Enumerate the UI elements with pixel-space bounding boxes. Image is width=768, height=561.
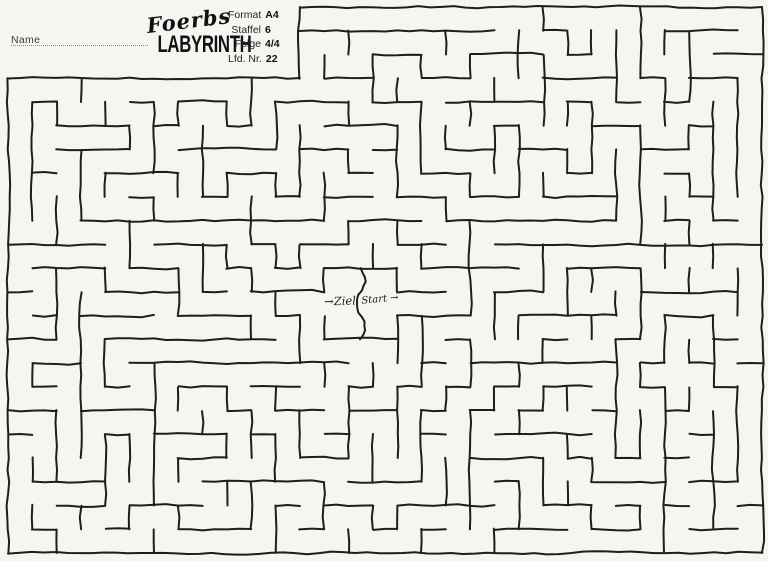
info-panel: Format A4 Staffel 6 Folge 4/4 Lfd. Nr. 2… [228,8,286,66]
info-value: 22 [266,52,286,67]
info-value: 6 [265,23,286,38]
info-label: Staffel [228,23,265,38]
name-label: Name [11,34,40,46]
info-label: Folge [228,37,265,52]
maze-drawing [0,0,768,561]
info-label: Format [228,8,265,23]
ziel-label: →Ziel [321,293,359,308]
name-field: Name [11,30,148,46]
maze-worksheet: Name Foerbs LABYRINTH Format A4 Staffel … [0,0,768,561]
info-value: 4/4 [265,37,286,52]
info-label: Lfd. Nr. [228,52,266,67]
maze-walls [7,6,765,555]
info-row-format: Format A4 [228,8,286,23]
logo: Foerbs LABYRINTH [144,9,234,56]
info-row-lfd-nr: Lfd. Nr. 22 [228,52,286,67]
info-row-staffel: Staffel 6 [228,23,286,38]
info-value: A4 [265,8,286,23]
info-row-folge: Folge 4/4 [228,37,286,52]
logo-title-text: LABYRINTH [158,33,221,56]
